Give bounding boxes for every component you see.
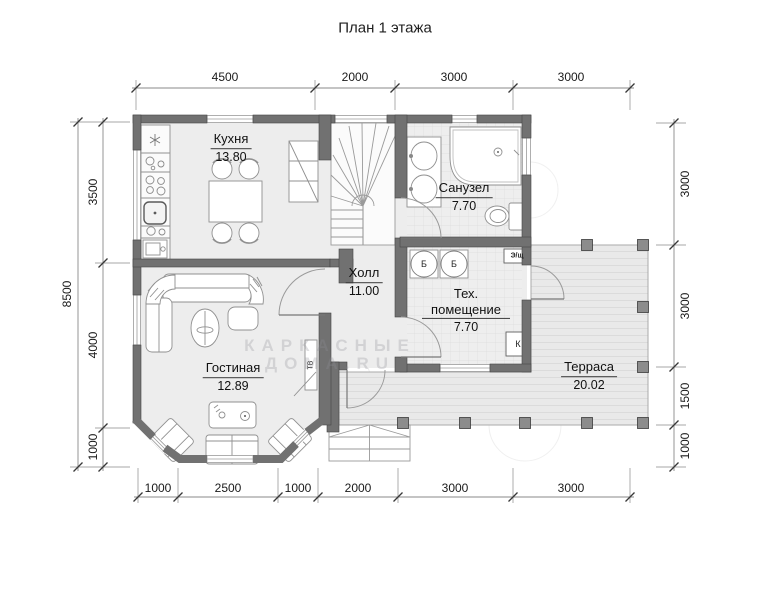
ottoman	[228, 307, 258, 330]
sink-2	[411, 175, 437, 203]
page-title: План 1 этажа	[338, 20, 432, 37]
dining-table	[209, 181, 262, 222]
dim-left-4000: 4000	[86, 332, 100, 359]
tv-label: ТВ	[308, 361, 315, 370]
electrical-panel-label: Э/щ	[511, 253, 524, 260]
staircase	[331, 123, 395, 245]
dim-left-1000: 1000	[86, 434, 100, 461]
dim-bottom-1000b: 1000	[285, 481, 312, 495]
dim-bottom-2000: 2000	[345, 481, 372, 495]
dim-left-8500: 8500	[60, 281, 74, 308]
dim-left-3500: 3500	[86, 179, 100, 206]
room-label-kitchen: Кухня 13.80	[211, 130, 252, 164]
floor-plan-page: План 1 этажа 4500 2000 3000 3000 1000 25…	[0, 0, 768, 592]
dim-right-1500: 1500	[678, 383, 692, 410]
room-label-tech: Тех. помещение 7.70	[422, 286, 510, 334]
boiler-1-label: Б	[421, 259, 427, 269]
dim-bottom-3000a: 3000	[442, 481, 469, 495]
shower	[450, 127, 521, 185]
boiler-2-label: Б	[451, 259, 457, 269]
dim-bottom-2500: 2500	[215, 481, 242, 495]
room-label-terrace: Терраса 20.02	[561, 358, 617, 392]
dim-top-3000b: 3000	[558, 70, 585, 84]
room-label-hall: Холл 11.00	[346, 264, 383, 298]
dim-bottom-1000a: 1000	[145, 481, 172, 495]
dim-top-2000: 2000	[342, 70, 369, 84]
dim-right-3000a: 3000	[678, 171, 692, 198]
room-label-bathroom: Санузел 7.70	[436, 179, 493, 213]
sink-1	[411, 142, 437, 170]
dim-top-4500: 4500	[212, 70, 239, 84]
dim-right-1000: 1000	[678, 433, 692, 460]
room-label-living: Гостиная 12.89	[203, 359, 264, 393]
dim-bottom-3000b: 3000	[558, 481, 585, 495]
floor-plan-drawing	[0, 0, 768, 592]
entrance-steps	[329, 425, 410, 461]
dim-right-3000b: 3000	[678, 293, 692, 320]
dim-top-3000a: 3000	[441, 70, 468, 84]
boiler-unit-label: К	[515, 339, 520, 349]
